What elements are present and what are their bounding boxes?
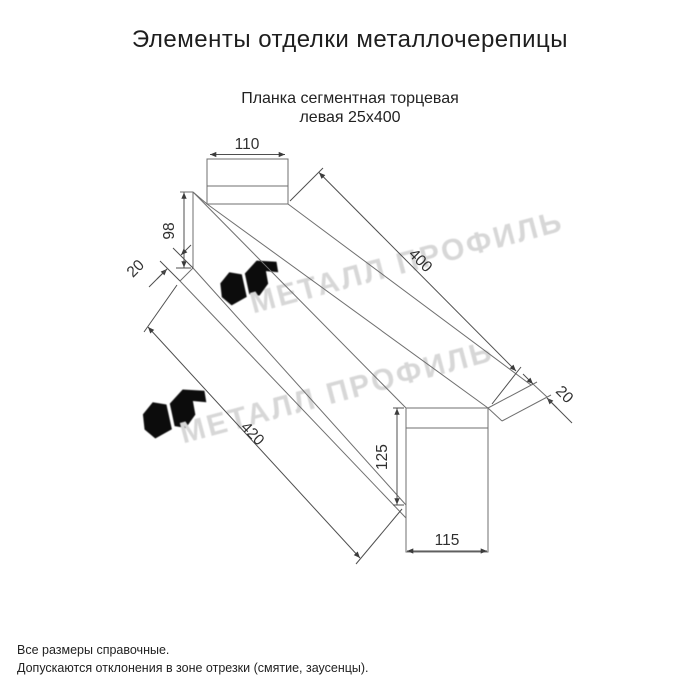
watermark-upper: МЕТАЛЛ ПРОФИЛЬ [215,205,567,321]
dim-label-125: 125 [374,444,391,470]
dim-110: 110 [210,136,285,155]
technical-drawing: МЕТАЛЛ ПРОФИЛЬ МЕТАЛЛ ПРОФИЛЬ [0,0,700,700]
dimension-annotations: 110 98 20 400 [124,136,577,564]
watermark-lower: МЕТАЛЛ ПРОФИЛЬ [137,335,497,451]
dim-label-98: 98 [161,222,178,239]
watermark-text: МЕТАЛЛ ПРОФИЛЬ [247,205,568,321]
dim-label-20-left: 20 [124,256,148,280]
left-end-section [207,159,288,204]
dim-115: 115 [407,532,487,551]
dim-20-left: 20 [124,245,193,287]
right-end-section [406,408,488,552]
page: Элементы отделки металлочерепицы Планка … [0,0,700,700]
dim-label-20-right: 20 [552,383,576,407]
dim-98: 98 [161,193,191,269]
part-outline [180,159,551,552]
dim-20-right: 20 [523,374,577,423]
footnote-line2: Допускаются отклонения в зоне отрезки (с… [17,659,369,677]
watermark-text: МЕТАЛЛ ПРОФИЛЬ [177,335,498,451]
dim-125: 125 [374,408,404,505]
dim-label-110: 110 [235,136,260,153]
footnote-line1: Все размеры справочные. [17,641,369,659]
footnotes: Все размеры справочные. Допускаются откл… [17,641,369,677]
dim-label-115: 115 [435,532,460,549]
